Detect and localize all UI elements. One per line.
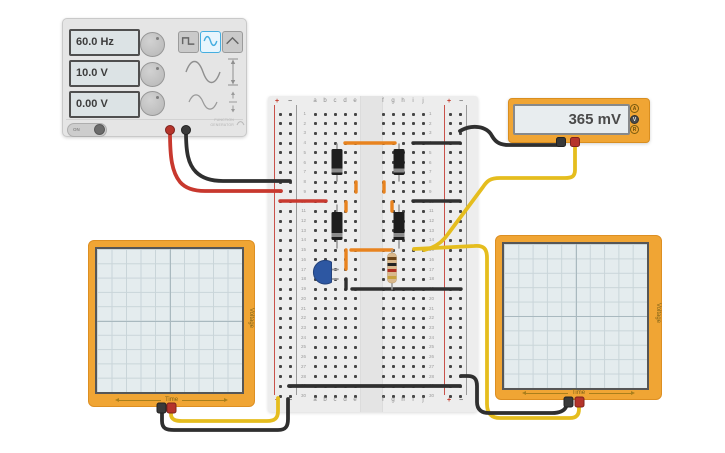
- breadboard-hole[interactable]: [289, 122, 292, 125]
- breadboard-hole[interactable]: [412, 132, 415, 135]
- breadboard-hole[interactable]: [279, 307, 282, 310]
- breadboard-hole[interactable]: [422, 268, 425, 271]
- breadboard-hole[interactable]: [402, 365, 405, 368]
- breadboard-hole[interactable]: [449, 278, 452, 281]
- breadboard-hole[interactable]: [422, 258, 425, 261]
- breadboard-hole[interactable]: [422, 336, 425, 339]
- breadboard-hole[interactable]: [422, 249, 425, 252]
- breadboard-hole[interactable]: [392, 268, 395, 271]
- breadboard-hole[interactable]: [334, 229, 337, 232]
- breadboard-hole[interactable]: [314, 356, 317, 359]
- breadboard-hole[interactable]: [412, 258, 415, 261]
- breadboard-hole[interactable]: [334, 210, 337, 213]
- breadboard-hole[interactable]: [279, 336, 282, 339]
- breadboard-hole[interactable]: [279, 190, 282, 193]
- breadboard-hole[interactable]: [412, 151, 415, 154]
- breadboard-hole[interactable]: [382, 229, 385, 232]
- breadboard-hole[interactable]: [314, 249, 317, 252]
- breadboard-hole[interactable]: [392, 288, 395, 291]
- breadboard-hole[interactable]: [392, 356, 395, 359]
- breadboard-hole[interactable]: [344, 356, 347, 359]
- breadboard-hole[interactable]: [449, 181, 452, 184]
- breadboard-hole[interactable]: [392, 317, 395, 320]
- breadboard-hole[interactable]: [422, 220, 425, 223]
- breadboard-hole[interactable]: [314, 365, 317, 368]
- breadboard[interactable]: 1122334455667788991010111112121313141415…: [268, 96, 478, 412]
- breadboard-hole[interactable]: [279, 161, 282, 164]
- breadboard-hole[interactable]: [449, 229, 452, 232]
- breadboard-hole[interactable]: [459, 229, 462, 232]
- breadboard-hole[interactable]: [412, 171, 415, 174]
- breadboard-hole[interactable]: [334, 278, 337, 281]
- breadboard-hole[interactable]: [422, 365, 425, 368]
- breadboard-hole[interactable]: [314, 229, 317, 232]
- breadboard-hole[interactable]: [334, 161, 337, 164]
- breadboard-hole[interactable]: [289, 297, 292, 300]
- breadboard-hole[interactable]: [392, 190, 395, 193]
- breadboard-hole[interactable]: [324, 356, 327, 359]
- breadboard-hole[interactable]: [392, 385, 395, 388]
- breadboard-hole[interactable]: [422, 151, 425, 154]
- breadboard-hole[interactable]: [422, 307, 425, 310]
- breadboard-hole[interactable]: [334, 288, 337, 291]
- breadboard-hole[interactable]: [412, 317, 415, 320]
- breadboard-hole[interactable]: [422, 297, 425, 300]
- breadboard-hole[interactable]: [382, 326, 385, 329]
- breadboard-hole[interactable]: [402, 258, 405, 261]
- breadboard-hole[interactable]: [344, 307, 347, 310]
- breadboard-hole[interactable]: [324, 220, 327, 223]
- breadboard-hole[interactable]: [334, 307, 337, 310]
- breadboard-hole[interactable]: [392, 307, 395, 310]
- breadboard-hole[interactable]: [392, 326, 395, 329]
- breadboard-hole[interactable]: [449, 132, 452, 135]
- breadboard-hole[interactable]: [412, 229, 415, 232]
- breadboard-hole[interactable]: [354, 181, 357, 184]
- breadboard-hole[interactable]: [354, 171, 357, 174]
- breadboard-hole[interactable]: [289, 326, 292, 329]
- breadboard-hole[interactable]: [279, 278, 282, 281]
- breadboard-hole[interactable]: [314, 336, 317, 339]
- breadboard-hole[interactable]: [402, 326, 405, 329]
- breadboard-hole[interactable]: [382, 346, 385, 349]
- breadboard-hole[interactable]: [382, 385, 385, 388]
- breadboard-hole[interactable]: [402, 385, 405, 388]
- breadboard-hole[interactable]: [382, 239, 385, 242]
- breadboard-hole[interactable]: [449, 307, 452, 310]
- breadboard-hole[interactable]: [382, 113, 385, 116]
- breadboard-hole[interactable]: [422, 171, 425, 174]
- breadboard-hole[interactable]: [289, 200, 292, 203]
- breadboard-hole[interactable]: [344, 220, 347, 223]
- breadboard-hole[interactable]: [344, 190, 347, 193]
- breadboard-hole[interactable]: [402, 161, 405, 164]
- breadboard-hole[interactable]: [279, 181, 282, 184]
- breadboard-hole[interactable]: [279, 258, 282, 261]
- breadboard-hole[interactable]: [402, 278, 405, 281]
- breadboard-hole[interactable]: [392, 132, 395, 135]
- breadboard-hole[interactable]: [459, 385, 462, 388]
- breadboard-hole[interactable]: [354, 229, 357, 232]
- breadboard-hole[interactable]: [422, 229, 425, 232]
- breadboard-hole[interactable]: [459, 258, 462, 261]
- breadboard-hole[interactable]: [314, 151, 317, 154]
- breadboard-hole[interactable]: [382, 268, 385, 271]
- breadboard-hole[interactable]: [324, 200, 327, 203]
- breadboard-hole[interactable]: [324, 249, 327, 252]
- breadboard-hole[interactable]: [459, 210, 462, 213]
- breadboard-hole[interactable]: [279, 239, 282, 242]
- breadboard-hole[interactable]: [402, 336, 405, 339]
- breadboard-hole[interactable]: [402, 142, 405, 145]
- breadboard-hole[interactable]: [334, 268, 337, 271]
- breadboard-hole[interactable]: [382, 336, 385, 339]
- breadboard-hole[interactable]: [402, 151, 405, 154]
- breadboard-hole[interactable]: [279, 288, 282, 291]
- breadboard-hole[interactable]: [422, 210, 425, 213]
- breadboard-hole[interactable]: [402, 200, 405, 203]
- mode-button-A[interactable]: A: [630, 104, 639, 113]
- breadboard-hole[interactable]: [412, 220, 415, 223]
- breadboard-hole[interactable]: [344, 288, 347, 291]
- power-toggle[interactable]: ON: [67, 123, 107, 137]
- breadboard-hole[interactable]: [344, 375, 347, 378]
- breadboard-hole[interactable]: [314, 171, 317, 174]
- breadboard-hole[interactable]: [449, 297, 452, 300]
- breadboard-hole[interactable]: [314, 385, 317, 388]
- breadboard-hole[interactable]: [354, 385, 357, 388]
- breadboard-hole[interactable]: [382, 278, 385, 281]
- breadboard-hole[interactable]: [392, 220, 395, 223]
- breadboard-hole[interactable]: [354, 278, 357, 281]
- breadboard-hole[interactable]: [344, 229, 347, 232]
- breadboard-hole[interactable]: [422, 278, 425, 281]
- breadboard-hole[interactable]: [412, 346, 415, 349]
- breadboard-hole[interactable]: [314, 307, 317, 310]
- breadboard-hole[interactable]: [344, 239, 347, 242]
- breadboard-hole[interactable]: [324, 210, 327, 213]
- breadboard-hole[interactable]: [422, 161, 425, 164]
- breadboard-hole[interactable]: [314, 326, 317, 329]
- breadboard-hole[interactable]: [392, 239, 395, 242]
- wire-fgen-red-to-positive-rail[interactable]: [170, 132, 281, 191]
- breadboard-hole[interactable]: [354, 200, 357, 203]
- breadboard-hole[interactable]: [344, 249, 347, 252]
- breadboard-hole[interactable]: [392, 346, 395, 349]
- breadboard-hole[interactable]: [449, 142, 452, 145]
- breadboard-hole[interactable]: [422, 200, 425, 203]
- breadboard-hole[interactable]: [382, 171, 385, 174]
- breadboard-hole[interactable]: [459, 122, 462, 125]
- breadboard-hole[interactable]: [449, 151, 452, 154]
- breadboard-hole[interactable]: [412, 385, 415, 388]
- breadboard-hole[interactable]: [354, 132, 357, 135]
- breadboard-hole[interactable]: [314, 220, 317, 223]
- breadboard-hole[interactable]: [354, 326, 357, 329]
- breadboard-hole[interactable]: [422, 122, 425, 125]
- breadboard-hole[interactable]: [449, 336, 452, 339]
- breadboard-hole[interactable]: [344, 171, 347, 174]
- breadboard-hole[interactable]: [382, 249, 385, 252]
- breadboard-hole[interactable]: [422, 190, 425, 193]
- breadboard-hole[interactable]: [449, 326, 452, 329]
- breadboard-hole[interactable]: [392, 375, 395, 378]
- breadboard-hole[interactable]: [459, 268, 462, 271]
- breadboard-hole[interactable]: [412, 122, 415, 125]
- breadboard-hole[interactable]: [412, 249, 415, 252]
- breadboard-hole[interactable]: [449, 268, 452, 271]
- breadboard-hole[interactable]: [334, 365, 337, 368]
- breadboard-hole[interactable]: [289, 268, 292, 271]
- breadboard-hole[interactable]: [289, 317, 292, 320]
- breadboard-hole[interactable]: [314, 239, 317, 242]
- breadboard-hole[interactable]: [402, 181, 405, 184]
- breadboard-hole[interactable]: [412, 142, 415, 145]
- breadboard-hole[interactable]: [449, 161, 452, 164]
- breadboard-hole[interactable]: [382, 142, 385, 145]
- breadboard-hole[interactable]: [314, 375, 317, 378]
- breadboard-hole[interactable]: [449, 385, 452, 388]
- breadboard-hole[interactable]: [459, 113, 462, 116]
- breadboard-hole[interactable]: [324, 385, 327, 388]
- breadboard-hole[interactable]: [392, 181, 395, 184]
- breadboard-hole[interactable]: [459, 317, 462, 320]
- breadboard-hole[interactable]: [324, 278, 327, 281]
- breadboard-hole[interactable]: [402, 122, 405, 125]
- breadboard-hole[interactable]: [412, 375, 415, 378]
- breadboard-hole[interactable]: [449, 258, 452, 261]
- breadboard-hole[interactable]: [289, 365, 292, 368]
- breadboard-hole[interactable]: [382, 200, 385, 203]
- breadboard-hole[interactable]: [449, 249, 452, 252]
- breadboard-hole[interactable]: [382, 297, 385, 300]
- breadboard-hole[interactable]: [324, 181, 327, 184]
- breadboard-hole[interactable]: [334, 346, 337, 349]
- breadboard-hole[interactable]: [314, 122, 317, 125]
- breadboard-hole[interactable]: [334, 375, 337, 378]
- breadboard-hole[interactable]: [449, 122, 452, 125]
- breadboard-hole[interactable]: [289, 190, 292, 193]
- breadboard-hole[interactable]: [402, 190, 405, 193]
- breadboard-hole[interactable]: [382, 288, 385, 291]
- breadboard-hole[interactable]: [314, 132, 317, 135]
- breadboard-hole[interactable]: [354, 142, 357, 145]
- breadboard-hole[interactable]: [402, 317, 405, 320]
- breadboard-hole[interactable]: [289, 142, 292, 145]
- breadboard-hole[interactable]: [279, 346, 282, 349]
- breadboard-hole[interactable]: [459, 278, 462, 281]
- breadboard-hole[interactable]: [279, 317, 282, 320]
- breadboard-hole[interactable]: [354, 356, 357, 359]
- breadboard-hole[interactable]: [289, 356, 292, 359]
- breadboard-hole[interactable]: [354, 249, 357, 252]
- breadboard-hole[interactable]: [344, 317, 347, 320]
- breadboard-hole[interactable]: [422, 113, 425, 116]
- breadboard-hole[interactable]: [402, 249, 405, 252]
- breadboard-hole[interactable]: [279, 365, 282, 368]
- breadboard-hole[interactable]: [279, 171, 282, 174]
- breadboard-hole[interactable]: [354, 151, 357, 154]
- breadboard-hole[interactable]: [459, 375, 462, 378]
- breadboard-hole[interactable]: [412, 297, 415, 300]
- breadboard-hole[interactable]: [459, 220, 462, 223]
- breadboard-hole[interactable]: [314, 181, 317, 184]
- breadboard-hole[interactable]: [334, 132, 337, 135]
- breadboard-hole[interactable]: [324, 317, 327, 320]
- breadboard-hole[interactable]: [412, 190, 415, 193]
- breadboard-hole[interactable]: [344, 210, 347, 213]
- breadboard-hole[interactable]: [459, 297, 462, 300]
- breadboard-hole[interactable]: [344, 268, 347, 271]
- breadboard-hole[interactable]: [279, 268, 282, 271]
- breadboard-hole[interactable]: [314, 142, 317, 145]
- breadboard-hole[interactable]: [289, 132, 292, 135]
- breadboard-hole[interactable]: [422, 317, 425, 320]
- breadboard-hole[interactable]: [382, 356, 385, 359]
- breadboard-hole[interactable]: [279, 132, 282, 135]
- breadboard-hole[interactable]: [279, 385, 282, 388]
- breadboard-hole[interactable]: [324, 142, 327, 145]
- breadboard-hole[interactable]: [279, 326, 282, 329]
- breadboard-hole[interactable]: [324, 161, 327, 164]
- breadboard-hole[interactable]: [402, 307, 405, 310]
- breadboard-hole[interactable]: [392, 336, 395, 339]
- breadboard-hole[interactable]: [354, 288, 357, 291]
- breadboard-hole[interactable]: [324, 268, 327, 271]
- breadboard-hole[interactable]: [334, 385, 337, 388]
- breadboard-hole[interactable]: [279, 113, 282, 116]
- breadboard-hole[interactable]: [459, 326, 462, 329]
- breadboard-hole[interactable]: [354, 113, 357, 116]
- breadboard-hole[interactable]: [392, 297, 395, 300]
- breadboard-hole[interactable]: [449, 171, 452, 174]
- breadboard-hole[interactable]: [412, 307, 415, 310]
- breadboard-hole[interactable]: [459, 288, 462, 291]
- breadboard-hole[interactable]: [449, 220, 452, 223]
- breadboard-hole[interactable]: [392, 278, 395, 281]
- breadboard-hole[interactable]: [334, 113, 337, 116]
- breadboard-hole[interactable]: [314, 210, 317, 213]
- breadboard-hole[interactable]: [289, 151, 292, 154]
- breadboard-hole[interactable]: [279, 229, 282, 232]
- breadboard-hole[interactable]: [324, 297, 327, 300]
- breadboard-hole[interactable]: [289, 278, 292, 281]
- breadboard-hole[interactable]: [392, 200, 395, 203]
- breadboard-hole[interactable]: [382, 365, 385, 368]
- breadboard-hole[interactable]: [354, 307, 357, 310]
- breadboard-hole[interactable]: [459, 307, 462, 310]
- breadboard-hole[interactable]: [289, 171, 292, 174]
- breadboard-hole[interactable]: [334, 326, 337, 329]
- breadboard-hole[interactable]: [289, 346, 292, 349]
- breadboard-hole[interactable]: [402, 229, 405, 232]
- breadboard-hole[interactable]: [289, 229, 292, 232]
- breadboard-hole[interactable]: [449, 190, 452, 193]
- breadboard-hole[interactable]: [324, 239, 327, 242]
- breadboard-hole[interactable]: [382, 317, 385, 320]
- breadboard-hole[interactable]: [279, 142, 282, 145]
- breadboard-hole[interactable]: [314, 278, 317, 281]
- breadboard-hole[interactable]: [392, 161, 395, 164]
- breadboard-hole[interactable]: [314, 297, 317, 300]
- breadboard-hole[interactable]: [324, 229, 327, 232]
- breadboard-hole[interactable]: [459, 151, 462, 154]
- breadboard-hole[interactable]: [334, 151, 337, 154]
- breadboard-hole[interactable]: [354, 317, 357, 320]
- breadboard-hole[interactable]: [324, 346, 327, 349]
- breadboard-hole[interactable]: [382, 375, 385, 378]
- breadboard-hole[interactable]: [449, 365, 452, 368]
- breadboard-hole[interactable]: [449, 210, 452, 213]
- breadboard-hole[interactable]: [392, 210, 395, 213]
- breadboard-hole[interactable]: [334, 258, 337, 261]
- breadboard-hole[interactable]: [354, 220, 357, 223]
- breadboard-hole[interactable]: [402, 220, 405, 223]
- breadboard-hole[interactable]: [324, 365, 327, 368]
- breadboard-hole[interactable]: [392, 113, 395, 116]
- breadboard-hole[interactable]: [459, 181, 462, 184]
- breadboard-hole[interactable]: [422, 142, 425, 145]
- breadboard-hole[interactable]: [344, 151, 347, 154]
- breadboard-hole[interactable]: [314, 288, 317, 291]
- breadboard-hole[interactable]: [324, 122, 327, 125]
- breadboard-hole[interactable]: [334, 336, 337, 339]
- breadboard-hole[interactable]: [422, 356, 425, 359]
- breadboard-hole[interactable]: [412, 161, 415, 164]
- breadboard-hole[interactable]: [344, 385, 347, 388]
- breadboard-hole[interactable]: [354, 161, 357, 164]
- breadboard-hole[interactable]: [412, 288, 415, 291]
- breadboard-hole[interactable]: [314, 161, 317, 164]
- breadboard-hole[interactable]: [459, 190, 462, 193]
- breadboard-hole[interactable]: [412, 326, 415, 329]
- breadboard-hole[interactable]: [412, 239, 415, 242]
- breadboard-hole[interactable]: [289, 258, 292, 261]
- breadboard-hole[interactable]: [289, 375, 292, 378]
- mode-button-V[interactable]: V: [630, 115, 639, 124]
- breadboard-hole[interactable]: [289, 288, 292, 291]
- breadboard-hole[interactable]: [334, 181, 337, 184]
- breadboard-hole[interactable]: [392, 365, 395, 368]
- breadboard-hole[interactable]: [279, 356, 282, 359]
- breadboard-hole[interactable]: [334, 356, 337, 359]
- breadboard-hole[interactable]: [279, 220, 282, 223]
- breadboard-hole[interactable]: [402, 346, 405, 349]
- mode-button-R[interactable]: R: [630, 125, 639, 134]
- breadboard-hole[interactable]: [382, 220, 385, 223]
- breadboard-hole[interactable]: [422, 375, 425, 378]
- breadboard-hole[interactable]: [279, 297, 282, 300]
- breadboard-hole[interactable]: [279, 375, 282, 378]
- breadboard-hole[interactable]: [344, 200, 347, 203]
- breadboard-hole[interactable]: [402, 297, 405, 300]
- breadboard-hole[interactable]: [459, 142, 462, 145]
- breadboard-hole[interactable]: [382, 161, 385, 164]
- breadboard-hole[interactable]: [314, 258, 317, 261]
- breadboard-hole[interactable]: [354, 375, 357, 378]
- breadboard-hole[interactable]: [314, 190, 317, 193]
- breadboard-hole[interactable]: [289, 385, 292, 388]
- breadboard-hole[interactable]: [422, 181, 425, 184]
- breadboard-hole[interactable]: [392, 171, 395, 174]
- breadboard-hole[interactable]: [324, 258, 327, 261]
- breadboard-hole[interactable]: [289, 210, 292, 213]
- breadboard-hole[interactable]: [422, 385, 425, 388]
- breadboard-hole[interactable]: [344, 278, 347, 281]
- breadboard-hole[interactable]: [354, 346, 357, 349]
- breadboard-hole[interactable]: [314, 113, 317, 116]
- breadboard-hole[interactable]: [334, 220, 337, 223]
